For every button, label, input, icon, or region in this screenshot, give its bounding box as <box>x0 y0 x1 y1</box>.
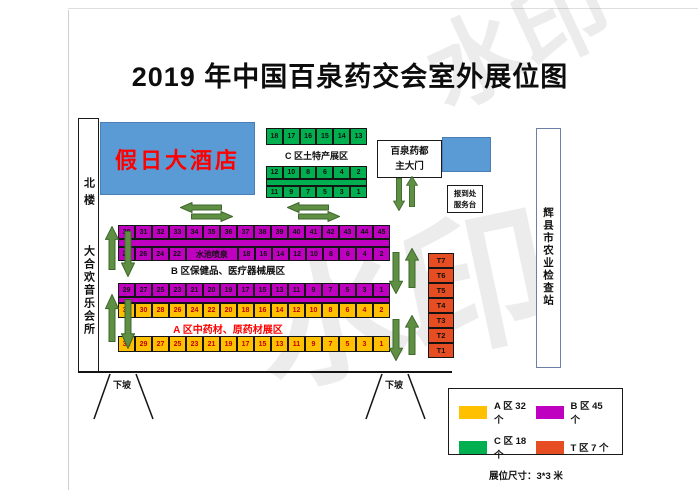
booth-cell: 42 <box>322 225 339 239</box>
booth-cell: T2 <box>428 328 454 343</box>
booth-cell: 6 <box>316 166 333 179</box>
booth-cell: 12 <box>288 303 305 318</box>
booth-cell: 15 <box>254 283 271 297</box>
legend-swatch-c <box>459 441 487 454</box>
service-desk-line1: 报到处 <box>454 188 477 199</box>
booth-cell: 26 <box>135 247 152 261</box>
booth-cell: 36 <box>220 225 237 239</box>
legend-item-a: A 区 32 个 <box>459 398 536 426</box>
booth-cell: 28 <box>152 303 169 318</box>
arrow-right-icon <box>191 211 233 222</box>
zone-b-label: B 区保健品、医疗器械展区 <box>108 263 348 277</box>
zone-b-row2: 28262422 水池喷泉 18161412108642 <box>118 247 390 261</box>
booth-cell: 41 <box>305 225 322 239</box>
main-gate-line1: 百泉药都 <box>390 144 428 159</box>
booth-cell: 10 <box>283 166 300 179</box>
booth-cell: 25 <box>152 283 169 297</box>
booth-cell: 5 <box>339 283 356 297</box>
booth-cell: 22 <box>169 247 186 261</box>
booth-cell: 24 <box>152 247 169 261</box>
booth-cell: 15 <box>316 128 333 145</box>
zone-c-aisle <box>266 179 367 186</box>
booth-cell: 24 <box>186 303 203 318</box>
booth-cell: 33 <box>169 225 186 239</box>
zone-t-column: T7T6T5T4T3T2T1 <box>428 253 454 358</box>
booth-cell: 9 <box>305 336 322 352</box>
booth-cell: 13 <box>271 283 288 297</box>
booth-cell: 2 <box>373 247 390 261</box>
aisle-arrows-right-2 <box>389 315 420 361</box>
booth-cell: 20 <box>203 283 220 297</box>
legend-label-c: C 区 18 个 <box>494 433 536 461</box>
legend-item-c: C 区 18 个 <box>459 433 536 461</box>
booth-cell: 43 <box>339 225 356 239</box>
ramp-right: 下坡 <box>358 373 430 421</box>
booth-cell: 4 <box>333 166 350 179</box>
hotel-block: 假日大酒店 <box>100 122 255 195</box>
aisle-arrows-left-2 <box>105 294 136 350</box>
arrow-up-icon <box>405 315 419 355</box>
music-club-label: 大合欢音乐会所 <box>81 245 97 336</box>
booth-cell: 4 <box>356 247 373 261</box>
booth-cell: 15 <box>254 336 271 352</box>
booth-cell: 39 <box>271 225 288 239</box>
zone-c-label: C 区土特产展区 <box>256 149 377 162</box>
legend-item-t: T 区 7 个 <box>536 433 613 461</box>
booth-cell: 13 <box>271 336 288 352</box>
booth-cell: 7 <box>322 336 339 352</box>
booth-cell: 11 <box>288 283 305 297</box>
page-edge-top <box>68 8 698 9</box>
legend-size-note: 展位尺寸：3*3 米 <box>459 468 612 482</box>
booth-cell: 13 <box>350 128 367 145</box>
booth-cell: T6 <box>428 268 454 283</box>
booth-cell: 5 <box>316 186 333 198</box>
booth-cell: 19 <box>220 283 237 297</box>
left-buildings-box: 北楼 大合欢音乐会所 <box>78 118 99 372</box>
arrow-down-icon <box>389 252 403 294</box>
main-gate-line2: 主大门 <box>395 159 424 174</box>
booth-cell: 18 <box>237 303 254 318</box>
arrow-up-icon <box>105 294 119 342</box>
booth-cell: 17 <box>283 128 300 145</box>
booth-cell: 1 <box>350 186 367 198</box>
fountain-label: 水池喷泉 <box>186 247 239 261</box>
booth-cell: T7 <box>428 253 454 268</box>
zone-b-band2: 292725232120191715131197531 <box>118 283 390 303</box>
lane-arrows-left <box>180 202 236 224</box>
zone-c-row-mid: 12108642 <box>266 166 367 179</box>
booth-cell: 16 <box>300 128 317 145</box>
legend-item-b: B 区 45 个 <box>536 398 613 426</box>
booth-cell: 22 <box>203 303 220 318</box>
booth-cell: 38 <box>254 225 271 239</box>
booth-cell: 14 <box>271 303 288 318</box>
booth-cell: 9 <box>305 283 322 297</box>
booth-cell: 19 <box>220 336 237 352</box>
booth-cell: 10 <box>306 247 323 261</box>
aisle-arrows-right-1 <box>389 248 420 294</box>
booth-cell: 16 <box>254 303 271 318</box>
zone-b-row2-right: 18161412108642 <box>238 247 390 261</box>
booth-cell: 1 <box>373 283 390 297</box>
booth-cell: 6 <box>339 247 356 261</box>
service-desk-box: 报到处 服务台 <box>447 185 483 213</box>
booth-cell: 32 <box>152 225 169 239</box>
arrow-down-icon <box>121 231 135 277</box>
booth-cell: 11 <box>266 186 283 198</box>
arrow-right-icon <box>298 211 340 222</box>
booth-cell: 37 <box>237 225 254 239</box>
zone-a-row-even: 3230282624222018161412108642 <box>118 303 390 318</box>
booth-cell: 31 <box>135 225 152 239</box>
ramp-left: 下坡 <box>86 373 158 421</box>
hotel-label: 假日大酒店 <box>115 143 240 175</box>
booth-cell: 7 <box>300 186 317 198</box>
booth-cell: 4 <box>356 303 373 318</box>
booth-cell: T1 <box>428 343 454 358</box>
aisle-arrows-left-1 <box>105 226 136 278</box>
booth-cell: T3 <box>428 313 454 328</box>
legend-swatch-a <box>459 406 487 419</box>
booth-cell: 35 <box>203 225 220 239</box>
booth-cell: 9 <box>283 186 300 198</box>
booth-cell: 14 <box>272 247 289 261</box>
zone-b-row3: 292725232120191715131197531 <box>118 283 390 297</box>
zone-b-band1: 30313233343536373839404142434445 2826242… <box>118 225 390 261</box>
booth-cell: 17 <box>237 283 254 297</box>
booth-cell: 23 <box>186 336 203 352</box>
booth-cell: 5 <box>339 336 356 352</box>
booth-cell: 26 <box>169 303 186 318</box>
gate-side-building <box>442 137 491 172</box>
lane-arrows-right <box>287 202 343 224</box>
page-title: 2019 年中国百泉药交会室外展位图 <box>0 55 700 94</box>
legend-swatch-b <box>536 406 564 419</box>
booth-cell: 40 <box>288 225 305 239</box>
ramp-label: 下坡 <box>86 378 158 391</box>
booth-cell: 10 <box>305 303 322 318</box>
booth-cell: 3 <box>356 283 373 297</box>
north-building-label: 北楼 <box>81 177 97 211</box>
main-gate-box: 百泉药都 主大门 <box>377 140 442 178</box>
booth-cell: 18 <box>238 247 255 261</box>
booth-cell: 1 <box>373 336 390 352</box>
arrow-down-icon <box>389 319 403 361</box>
booth-cell: 27 <box>152 336 169 352</box>
service-desk-line2: 服务台 <box>454 199 477 210</box>
arrow-down-icon <box>393 178 405 211</box>
zone-c-row-bottom: 1197531 <box>266 186 367 198</box>
booth-cell: T5 <box>428 283 454 298</box>
booth-cell: 8 <box>322 303 339 318</box>
booth-cell: 11 <box>288 336 305 352</box>
booth-cell: 14 <box>333 128 350 145</box>
inspection-station-box: 辉县市农业检查站 <box>536 128 561 368</box>
booth-cell: 30 <box>135 303 152 318</box>
booth-cell: 23 <box>169 283 186 297</box>
ramp-label: 下坡 <box>358 378 430 391</box>
legend-swatch-t <box>536 441 564 454</box>
booth-cell: 8 <box>300 166 317 179</box>
legend-label-a: A 区 32 个 <box>494 398 536 426</box>
zone-a-label: A 区中药材、原药材展区 <box>108 321 348 336</box>
arrow-up-icon <box>406 176 418 207</box>
arrow-up-icon <box>105 226 119 270</box>
booth-cell: 44 <box>356 225 373 239</box>
booth-cell: 17 <box>237 336 254 352</box>
booth-cell: 12 <box>266 166 283 179</box>
zone-c-band: 12108642 1197531 <box>266 166 367 198</box>
booth-cell: 6 <box>339 303 356 318</box>
zone-a-row-odd: 312927252321191715131197531 <box>118 336 390 352</box>
booth-cell: 20 <box>220 303 237 318</box>
booth-cell: T4 <box>428 298 454 313</box>
booth-cell: 7 <box>322 283 339 297</box>
arrow-down-icon <box>121 299 135 349</box>
booth-cell: 8 <box>323 247 340 261</box>
inspection-station-label: 辉县市农业检查站 <box>541 207 556 307</box>
booth-cell: 3 <box>356 336 373 352</box>
zone-c-row-top: 181716151413 <box>266 128 367 145</box>
booth-cell: 34 <box>186 225 203 239</box>
booth-cell: 27 <box>135 283 152 297</box>
zone-b-row1: 30313233343536373839404142434445 <box>118 225 390 239</box>
arrow-up-icon <box>405 248 419 288</box>
legend-label-t: T 区 7 个 <box>571 440 609 454</box>
legend-label-b: B 区 45 个 <box>571 398 613 426</box>
booth-cell: 2 <box>373 303 390 318</box>
booth-cell: 2 <box>350 166 367 179</box>
booth-cell: 25 <box>169 336 186 352</box>
floorplan-canvas: 水印 水印 2019 年中国百泉药交会室外展位图 北楼 大合欢音乐会所 假日大酒… <box>0 0 700 494</box>
booth-cell: 16 <box>255 247 272 261</box>
booth-cell: 3 <box>333 186 350 198</box>
booth-cell: 29 <box>135 336 152 352</box>
booth-cell: 21 <box>203 336 220 352</box>
zone-b-aisle1 <box>118 239 390 247</box>
booth-cell: 21 <box>186 283 203 297</box>
booth-cell: 18 <box>266 128 283 145</box>
booth-cell: 12 <box>289 247 306 261</box>
legend-box: A 区 32 个 B 区 45 个 C 区 18 个 T 区 7 个 展位尺寸：… <box>448 388 623 455</box>
booth-cell: 45 <box>373 225 390 239</box>
